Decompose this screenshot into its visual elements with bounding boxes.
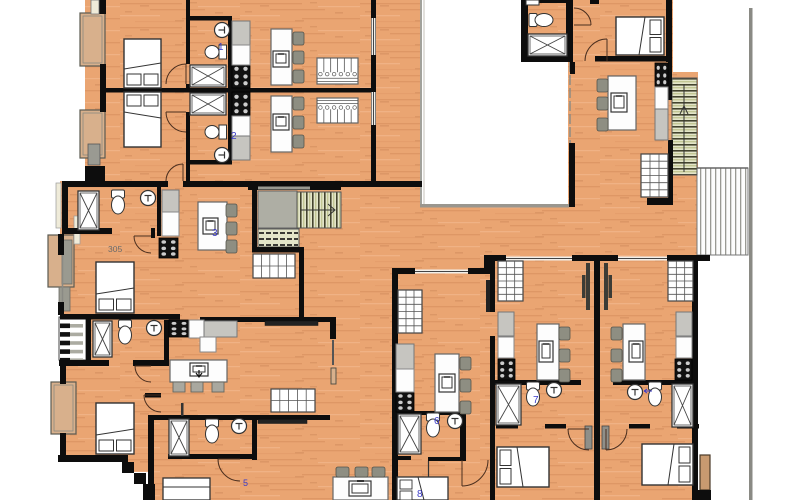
svg-text:5: 5 — [243, 478, 248, 488]
svg-text:7: 7 — [533, 395, 539, 406]
svg-text:1: 1 — [218, 42, 224, 53]
svg-text:305: 305 — [108, 244, 122, 254]
svg-text:2: 2 — [231, 131, 237, 142]
svg-text:8: 8 — [417, 489, 423, 500]
svg-text:6: 6 — [434, 416, 440, 427]
svg-text:3: 3 — [212, 228, 218, 239]
